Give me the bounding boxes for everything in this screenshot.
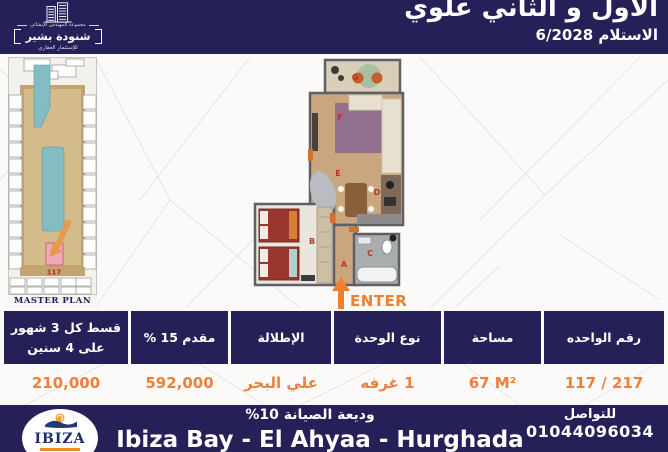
unit-details-table: قسط كل 3 شهور على 4 سنين 210,000 مقدم 15… (4, 311, 664, 398)
flyer-canvas: مجموعة المهندس الإنشائي شنودة بشير للإست… (0, 0, 668, 452)
column-value: 67 M² (444, 367, 541, 398)
ibiza-logo-text: IBIZA (22, 431, 98, 447)
contact-block: للتواصل 01044096034 (526, 407, 654, 441)
buildings-icon (40, 1, 76, 23)
contact-label: للتواصل (526, 407, 654, 422)
column-header: الإطلالة (231, 311, 331, 364)
unit-number-marker: 117 (47, 269, 62, 277)
header-band: مجموعة المهندس الإنشائي شنودة بشير للإست… (0, 0, 668, 54)
column-header: قسط كل 3 شهور على 4 سنين (4, 311, 128, 364)
column-value: 117 / 217 (544, 367, 664, 398)
column-value: 210,000 (4, 367, 128, 398)
decorative-dash (17, 25, 27, 26)
table-column-downpayment: مقدم 15 % 592,000 (131, 311, 228, 398)
page-title: الأول و الثاني علوي (404, 0, 658, 23)
maintenance-deposit: وديعة الصيانة 10% (130, 407, 490, 423)
table-column-area: مساحة 67 M² (444, 311, 541, 398)
enter-label: ENTER (350, 292, 407, 310)
brand-name: شنودة بشير (23, 30, 94, 43)
room-label-c: C (367, 249, 373, 258)
room-label-a: A (341, 260, 348, 269)
room-label-d: D (374, 188, 381, 197)
ibiza-logo-subline (40, 448, 80, 451)
brand-group-line: مجموعة المهندس الإنشائي (6, 22, 110, 28)
column-value: 1 غرفه (334, 367, 441, 398)
table-column-view: الإطلالة علي البحر (231, 311, 331, 398)
sun-wave-icon (42, 412, 78, 429)
table-column-installment: قسط كل 3 شهور على 4 سنين 210,000 (4, 311, 128, 398)
brand-logo: مجموعة المهندس الإنشائي شنودة بشير للإست… (6, 0, 110, 54)
bracket-left-icon (14, 29, 21, 44)
master-plan-image: 117 (8, 57, 97, 295)
column-header: رقم الواحده (544, 311, 664, 364)
contact-phone: 01044096034 (526, 422, 654, 441)
brand-group-text: مجموعة المهندس الإنشائي (30, 22, 86, 28)
room-label-b: B (309, 237, 315, 246)
table-column-unit-number: رقم الواحده 117 / 217 (544, 311, 664, 398)
column-header: نوع الوحدة (334, 311, 441, 364)
room-label-e: E (335, 169, 340, 178)
ibiza-logo: IBIZA (22, 409, 98, 452)
room-label-f: F (337, 113, 342, 122)
table-column-unit-type: نوع الوحدة 1 غرفه (334, 311, 441, 398)
column-header: مقدم 15 % (131, 311, 228, 364)
delivery-date: الاستلام 6/2028 (536, 26, 658, 44)
footer-band: IBIZA وديعة الصيانة 10% Ibiza Bay - El A… (0, 405, 668, 452)
column-value: علي البحر (231, 367, 331, 398)
brand-tagline: للإستثمار العقاري (6, 45, 110, 51)
brand-name-frame: شنودة بشير (6, 29, 110, 44)
master-plan-label: MASTER PLAN (8, 295, 97, 308)
bracket-right-icon (95, 29, 102, 44)
column-value: 592,000 (131, 367, 228, 398)
room-label-g: G (352, 73, 359, 82)
project-location: Ibiza Bay - El Ahyaa - Hurghada (100, 427, 540, 452)
floor-plan-image: G F E D B A C ENTER (253, 57, 410, 310)
column-header: مساحة (444, 311, 541, 364)
decorative-dash (89, 25, 99, 26)
